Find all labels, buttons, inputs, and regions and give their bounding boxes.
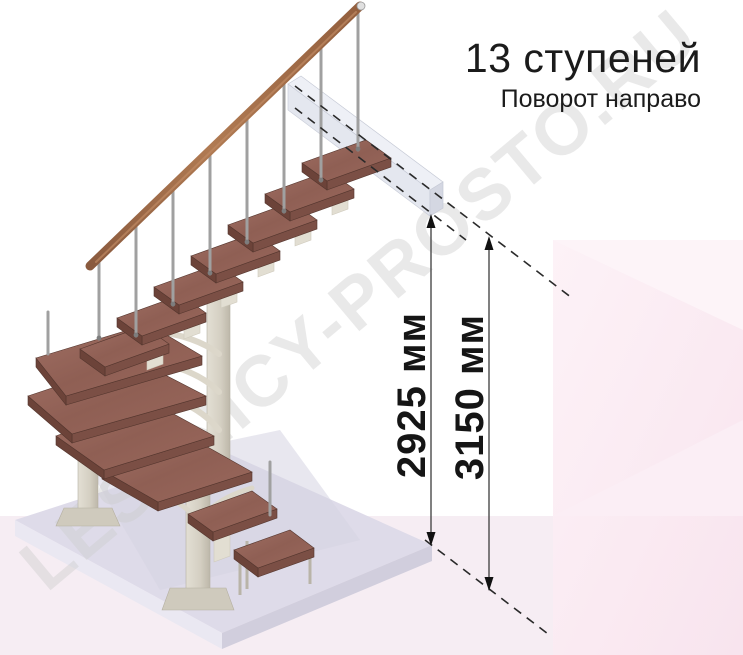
stair-diagram-page: LESTNICY-PROSTO.RU: [0, 0, 743, 655]
page-subtitle: Поворот направо: [465, 85, 701, 114]
title-block: 13 ступеней Поворот направо: [465, 38, 701, 114]
handrail-end-cap: [357, 2, 365, 10]
dimension-value-3150: 3150 мм: [448, 314, 492, 480]
dimension-value-2925: 2925 мм: [390, 312, 434, 478]
center-column-base-plate: [162, 588, 234, 610]
page-title: 13 ступеней: [465, 38, 701, 79]
left-column-base-plate: [56, 508, 120, 526]
